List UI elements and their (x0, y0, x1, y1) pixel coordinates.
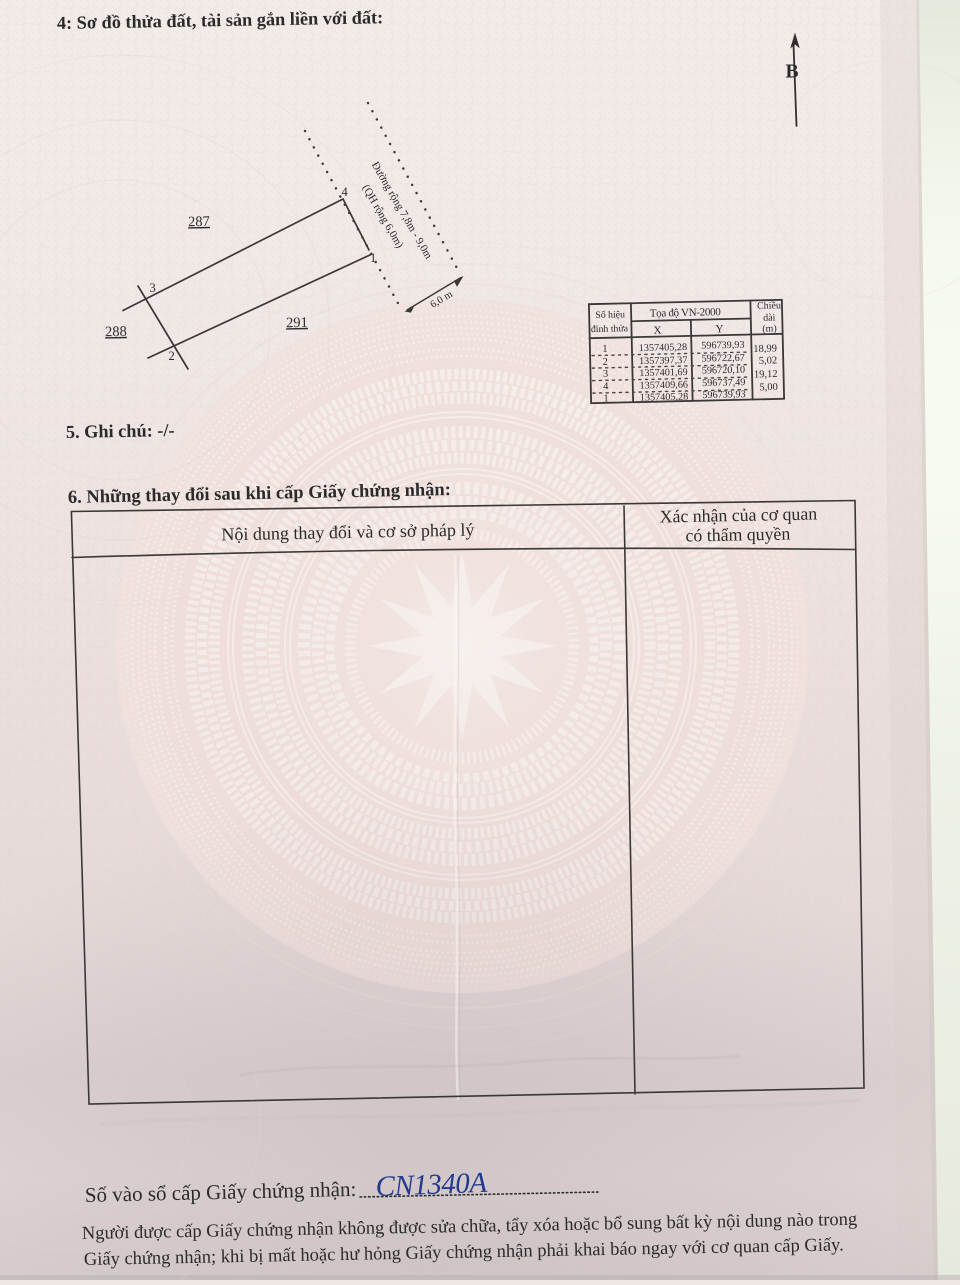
svg-text:(m): (m) (762, 323, 777, 334)
svg-text:2: 2 (602, 357, 607, 368)
svg-text:5,02: 5,02 (759, 355, 778, 366)
svg-text:Y: Y (715, 323, 723, 335)
svg-text:B: B (786, 62, 799, 83)
svg-text:1357401,69: 1357401,69 (639, 367, 688, 379)
svg-text:1357405,28: 1357405,28 (640, 391, 689, 403)
svg-text:1357397,37: 1357397,37 (639, 355, 688, 367)
svg-text:Chiều: Chiều (757, 300, 781, 312)
svg-text:1: 1 (602, 344, 607, 355)
svg-text:19,12: 19,12 (754, 369, 778, 381)
svg-text:3: 3 (150, 281, 156, 295)
svg-text:3: 3 (603, 369, 608, 380)
svg-text:2: 2 (169, 349, 175, 363)
svg-text:288: 288 (105, 324, 127, 340)
svg-text:5. Ghi chú: -/-: 5. Ghi chú: -/- (66, 420, 175, 442)
svg-text:5,00: 5,00 (759, 382, 778, 393)
svg-text:có thẩm quyền: có thẩm quyền (685, 523, 790, 545)
svg-text:596737,49: 596737,49 (702, 377, 746, 389)
svg-text:1357405,28: 1357405,28 (639, 342, 688, 354)
svg-text:1: 1 (603, 393, 608, 404)
svg-text:596720,10: 596720,10 (702, 365, 746, 377)
svg-text:Tọa độ VN-2000: Tọa độ VN-2000 (650, 306, 722, 320)
svg-text:596739,93: 596739,93 (702, 389, 746, 401)
svg-text:Xác nhận của cơ quan: Xác nhận của cơ quan (659, 503, 817, 526)
svg-text:X: X (653, 325, 661, 337)
svg-text:CN1340A: CN1340A (375, 1167, 488, 1203)
svg-text:4: 4 (342, 185, 349, 199)
svg-text:1357409,66: 1357409,66 (639, 379, 688, 391)
svg-text:đỉnh thửa: đỉnh thửa (591, 323, 629, 335)
svg-text:dài: dài (763, 312, 776, 323)
svg-text:596722,67: 596722,67 (701, 353, 745, 365)
svg-text:291: 291 (286, 315, 308, 331)
svg-text:Số hiệu: Số hiệu (595, 309, 625, 321)
svg-text:287: 287 (188, 214, 210, 230)
svg-text:596739,93: 596739,93 (701, 340, 745, 352)
svg-text:18,99: 18,99 (753, 343, 777, 355)
